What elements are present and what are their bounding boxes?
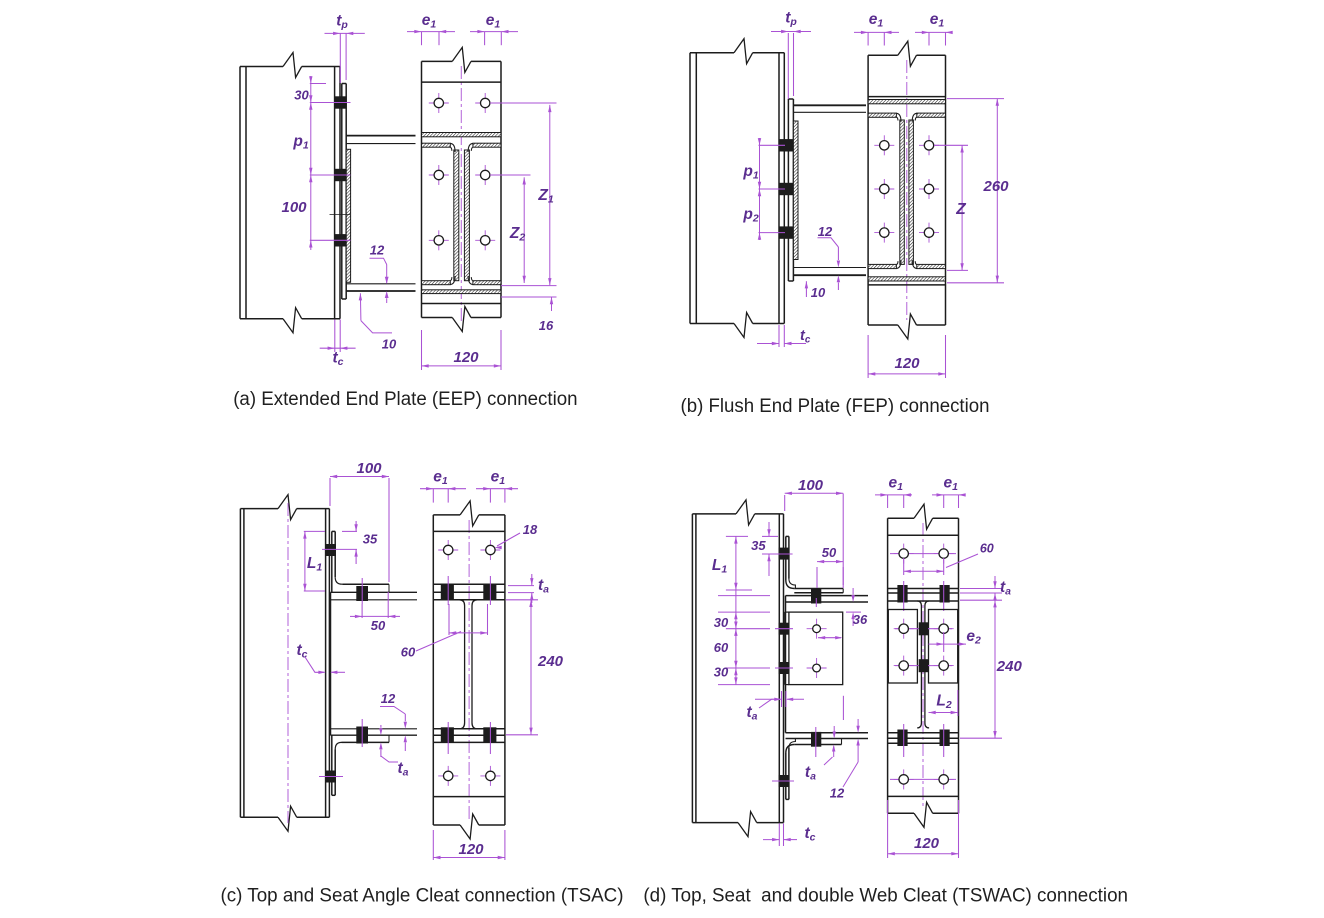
svg-text:260: 260 — [982, 178, 1009, 195]
svg-text:(c) Top and Seat Angle Cleat c: (c) Top and Seat Angle Cleat connection … — [221, 886, 624, 907]
svg-text:120: 120 — [453, 349, 479, 366]
svg-text:12: 12 — [818, 224, 833, 239]
svg-text:60: 60 — [401, 645, 416, 660]
svg-text:60: 60 — [980, 542, 994, 556]
svg-text:240: 240 — [996, 658, 1023, 675]
svg-text:30: 30 — [714, 615, 729, 630]
svg-text:16: 16 — [539, 318, 554, 333]
svg-text:120: 120 — [458, 841, 484, 858]
svg-text:120: 120 — [894, 355, 920, 372]
svg-text:30: 30 — [714, 665, 729, 680]
svg-text:12: 12 — [830, 786, 845, 801]
svg-text:30: 30 — [294, 88, 309, 103]
svg-text:100: 100 — [798, 477, 824, 494]
svg-text:50: 50 — [822, 545, 837, 560]
svg-text:50: 50 — [371, 618, 386, 633]
svg-text:36: 36 — [853, 612, 868, 627]
svg-text:240: 240 — [537, 653, 564, 670]
svg-text:60: 60 — [714, 640, 729, 655]
svg-text:10: 10 — [382, 337, 397, 352]
svg-text:(d) Top, Seat and double Web: (d) Top, Seat and double Web Cleat (TSWA… — [643, 886, 1128, 907]
svg-text:12: 12 — [381, 691, 396, 706]
svg-text:35: 35 — [363, 532, 378, 547]
svg-text:35: 35 — [751, 538, 766, 553]
svg-text:10: 10 — [811, 285, 826, 300]
svg-text:Z: Z — [955, 201, 966, 218]
svg-text:100: 100 — [356, 460, 382, 477]
svg-text:18: 18 — [523, 522, 538, 537]
svg-text:(a) Extended End Plate (EEP) c: (a) Extended End Plate (EEP) connection — [233, 389, 577, 410]
svg-text:120: 120 — [914, 835, 940, 852]
svg-text:12: 12 — [370, 243, 385, 258]
svg-text:100: 100 — [281, 199, 307, 216]
svg-text:(b) Flush End Plate (FEP) conn: (b) Flush End Plate (FEP) connection — [681, 396, 990, 417]
